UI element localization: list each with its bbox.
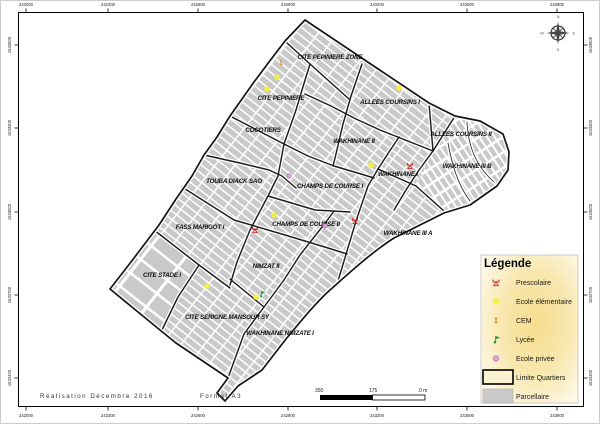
svg-text:WAKHINANE NIMZATE I: WAKHINANE NIMZATE I [246,330,314,337]
svg-text:1633300: 1633300 [7,119,12,136]
svg-text:NIMZAT II: NIMZAT II [253,263,280,270]
svg-text:ALLEES COURSINS II: ALLEES COURSINS II [429,131,492,138]
svg-text:242300: 242300 [101,413,116,418]
svg-text:TOUBA DIACK SAO: TOUBA DIACK SAO [206,178,262,185]
svg-text:Réalisation Décembre 2016: Réalisation Décembre 2016 [40,393,154,400]
svg-text:Ecole élémentaire: Ecole élémentaire [516,299,572,306]
svg-text:1633000: 1633000 [7,203,12,220]
svg-text:CHAMPS DE COURSE I: CHAMPS DE COURSE I [297,183,363,190]
svg-text:1633300: 1633300 [588,119,593,136]
svg-text:Légende: Légende [484,258,531,270]
svg-text:243800: 243800 [550,413,565,418]
svg-text:242600: 242600 [191,2,206,7]
svg-text:ALLEES COURSINS I: ALLEES COURSINS I [359,99,420,106]
svg-text:Lycée: Lycée [516,337,535,344]
svg-text:Limite Quartiers: Limite Quartiers [516,375,566,382]
svg-text:WAKHINANE II: WAKHINANE II [333,138,375,145]
svg-text:Format A3: Format A3 [200,393,242,400]
svg-text:242900: 242900 [281,413,296,418]
svg-text:1632400: 1632400 [588,369,593,386]
svg-text:Ecole privée: Ecole privée [516,356,555,363]
svg-text:1633600: 1633600 [588,36,593,53]
svg-text:CEM: CEM [516,318,532,325]
svg-text:1632400: 1632400 [7,369,12,386]
svg-text:243800: 243800 [550,2,565,7]
svg-text:242900: 242900 [281,2,296,7]
svg-text:242000: 242000 [19,2,34,7]
svg-text:1632700: 1632700 [7,286,12,303]
svg-text:175: 175 [369,388,378,394]
svg-text:WAKHINANE I: WAKHINANE I [378,171,418,178]
svg-text:WAKHINANE III A: WAKHINANE III A [384,230,433,237]
svg-text:1633000: 1633000 [588,203,593,220]
svg-text:CITE PEPINIERE: CITE PEPINIERE [258,95,306,102]
svg-text:242000: 242000 [19,413,34,418]
svg-text:W: W [540,31,544,36]
svg-text:CITE STADE I: CITE STADE I [143,272,181,279]
svg-text:0 m: 0 m [419,388,427,394]
svg-text:E: E [573,31,576,36]
svg-text:242600: 242600 [191,413,206,418]
svg-text:CITE SERIGNE MANSOUR SY: CITE SERIGNE MANSOUR SY [185,314,270,321]
svg-text:N: N [557,14,560,19]
svg-text:243500: 243500 [460,2,475,7]
svg-text:WAKHINANE III B: WAKHINANE III B [443,163,493,170]
svg-text:243200: 243200 [370,413,385,418]
svg-text:Parcellaire: Parcellaire [516,394,549,401]
svg-text:S: S [557,47,560,52]
svg-text:1632700: 1632700 [588,286,593,303]
svg-text:COCOTIERS: COCOTIERS [245,127,281,134]
svg-text:242300: 242300 [101,2,116,7]
svg-text:243200: 243200 [370,2,385,7]
svg-text:243500: 243500 [460,413,475,418]
svg-text:Prescolaire: Prescolaire [516,280,551,287]
svg-text:FASS MARIGOT I: FASS MARIGOT I [176,224,225,231]
svg-text:350: 350 [315,388,324,394]
svg-text:1633600: 1633600 [7,36,12,53]
svg-text:CHAMPS DE COURSE II: CHAMPS DE COURSE II [272,221,340,228]
svg-text:CITE PEPINIERE ZONE: CITE PEPINIERE ZONE [298,54,364,61]
